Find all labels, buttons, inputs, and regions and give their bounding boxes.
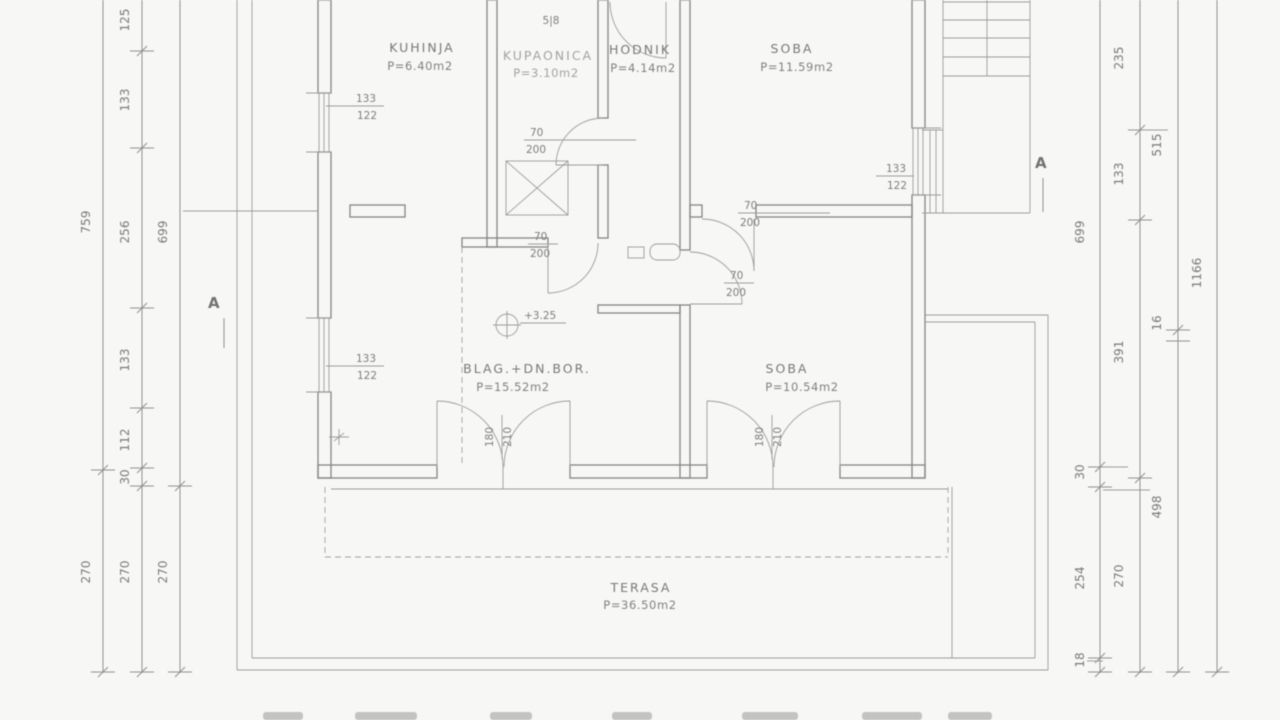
room-area-blag: P=15.52m2	[476, 380, 549, 394]
level-label: +3.25	[524, 310, 556, 322]
window-label-1: 133 122	[326, 93, 384, 122]
dim-label: 235	[1112, 47, 1126, 70]
balcony-doors: 180 210 180 210	[437, 401, 840, 489]
dim-label: 270	[79, 561, 93, 584]
svg-text:133: 133	[886, 163, 906, 175]
dim-label: 256	[118, 221, 132, 244]
section-markers: A A	[208, 154, 1047, 348]
svg-text:200: 200	[726, 287, 746, 299]
balcony-door-label-1: 180 210	[484, 415, 514, 459]
section-label-right: A	[1035, 154, 1047, 172]
svg-text:200: 200	[526, 144, 546, 156]
windows: 133 122 133 122 133 122	[306, 93, 941, 392]
room-name-terasa: TERASA	[610, 580, 672, 595]
svg-text:122: 122	[357, 110, 377, 122]
dim-label: 254	[1073, 567, 1087, 590]
dim-label: 498	[1150, 496, 1164, 519]
terrace-canopy-dashed-outline	[325, 487, 948, 557]
dim-label: 125	[118, 9, 132, 32]
svg-text:210: 210	[772, 427, 784, 447]
svg-text:180: 180	[754, 427, 766, 447]
window-label-3: 133 122	[876, 163, 914, 192]
room-area-kupaonica: P=3.10m2	[513, 66, 579, 80]
svg-text:133: 133	[356, 353, 376, 365]
svg-text:210: 210	[502, 427, 514, 447]
svg-text:70: 70	[744, 200, 757, 212]
svg-text:200: 200	[530, 248, 550, 260]
dim-label: 30	[1073, 464, 1087, 479]
section-label-left: A	[208, 294, 220, 312]
floor-plan-drawing: 759 270 125 133 256 133 112 30 270 699 2…	[0, 0, 1280, 720]
dim-label: 270	[156, 561, 170, 584]
dim-label: 1166	[1190, 258, 1204, 289]
right-dimension-chains: 699 30 254 18 235 133 391 270 515 16 498…	[1073, 0, 1229, 677]
room-name-soba-top: SOBA	[771, 41, 814, 56]
room-area-kuhinja: P=6.40m2	[387, 59, 453, 73]
dim-label: 515	[1150, 134, 1164, 157]
left-dimension-chains: 759 270 125 133 256 133 112 30 270 699 2…	[79, 0, 192, 677]
dim-label: 270	[1112, 565, 1126, 588]
dim-label: 112	[118, 429, 132, 452]
room-area-terasa: P=36.50m2	[603, 598, 676, 612]
door-label-1: 70 200	[524, 127, 636, 156]
level-marker: +3.25	[493, 310, 566, 339]
room-labels: KUHINJA P=6.40m2 KUPAONICA P=3.10m2 HODN…	[387, 40, 838, 612]
shaft-box	[506, 161, 568, 215]
room-area-hodnik: P=4.14m2	[610, 61, 676, 75]
room-name-kupaonica: KUPAONICA	[503, 48, 593, 63]
svg-text:180: 180	[484, 427, 496, 447]
window-label-2: 133 122	[326, 353, 384, 382]
dim-label: 18	[1073, 652, 1087, 667]
dim-label: 30	[118, 469, 132, 484]
room-name-hodnik: HODNIK	[609, 42, 671, 57]
balcony-door-label-2: 180 210	[754, 415, 784, 459]
wall-tick-mark	[329, 429, 349, 445]
dim-label: 133	[118, 89, 132, 112]
svg-text:70: 70	[730, 270, 743, 282]
svg-text:70: 70	[530, 127, 543, 139]
svg-text:122: 122	[357, 370, 377, 382]
dim-label: 391	[1112, 341, 1126, 364]
dim-label: 699	[1073, 221, 1087, 244]
dim-label: 759	[79, 211, 93, 234]
room-area-soba-bottom: P=10.54m2	[765, 380, 838, 394]
svg-text:200: 200	[740, 217, 760, 229]
door-label-4: 70 200	[724, 270, 754, 299]
dim-label: 16	[1150, 315, 1164, 330]
cutoff-bottom-dimension-marks	[263, 712, 992, 720]
dim-label: 699	[156, 221, 170, 244]
svg-text:122: 122	[887, 180, 907, 192]
wc-fixture	[628, 244, 680, 260]
door-label-3: 70 200	[528, 231, 558, 260]
dim-label: 133	[118, 349, 132, 372]
room-name-blag: BLAG.+DN.BOR.	[463, 361, 591, 376]
svg-text:133: 133	[356, 93, 376, 105]
room-area-soba-top: P=11.59m2	[760, 60, 833, 74]
dim-label: 133	[1112, 163, 1126, 186]
staircase	[922, 0, 1030, 213]
room-name-kuhinja: KUHINJA	[389, 40, 454, 55]
room-name-soba-bottom: SOBA	[766, 361, 809, 376]
stair-count-label: 5|8	[543, 15, 560, 27]
scanned-floor-plan: 759 270 125 133 256 133 112 30 270 699 2…	[0, 0, 1280, 720]
dim-label: 270	[118, 561, 132, 584]
svg-text:70: 70	[534, 231, 547, 243]
